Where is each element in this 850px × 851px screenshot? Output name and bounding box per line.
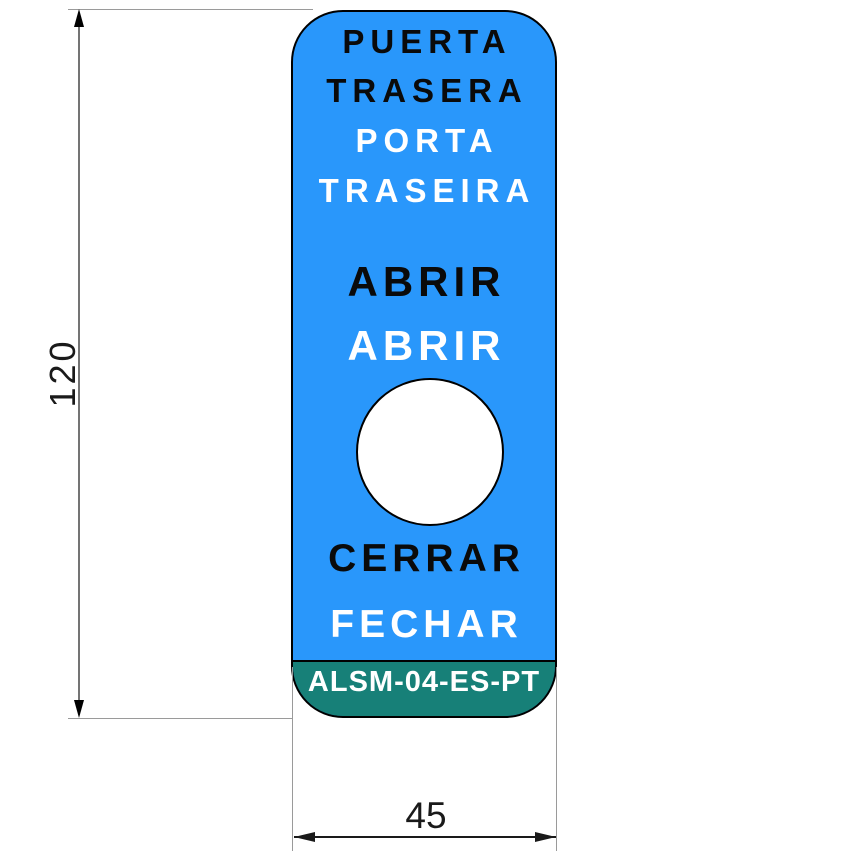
mounting-hole xyxy=(356,378,504,526)
text-traseira: TRASEIRA xyxy=(293,174,555,208)
extension-line-right xyxy=(556,667,557,851)
part-code-text: ALSM-04-ES-PT xyxy=(293,667,555,697)
text-porta: PORTA xyxy=(293,124,555,158)
arrowhead-down-icon xyxy=(74,700,84,718)
text-puerta: PUERTA xyxy=(293,25,555,59)
dimension-value-width: 45 xyxy=(405,798,446,834)
arrowhead-up-icon xyxy=(74,9,84,27)
door-tag-label: PUERTA TRASERA PORTA TRASEIRA ABRIR ABRI… xyxy=(291,10,557,718)
technical-drawing-canvas: 120 PUERTA TRASERA PORTA TRASEIRA ABRIR … xyxy=(0,0,850,851)
extension-line-top xyxy=(68,9,313,10)
text-cerrar: CERRAR xyxy=(293,538,555,580)
text-abrir-pt: ABRIR xyxy=(293,324,555,368)
dimension-line-horizontal xyxy=(294,836,556,838)
extension-line-left xyxy=(292,667,293,851)
part-code-band: ALSM-04-ES-PT xyxy=(291,660,557,718)
arrowhead-left-icon xyxy=(294,832,315,842)
text-abrir-es: ABRIR xyxy=(293,260,555,304)
text-trasera: TRASERA xyxy=(293,74,555,108)
text-fechar: FECHAR xyxy=(293,604,555,646)
extension-line-bottom xyxy=(68,718,293,719)
arrowhead-right-icon xyxy=(535,832,556,842)
dimension-value-height: 120 xyxy=(45,338,81,407)
